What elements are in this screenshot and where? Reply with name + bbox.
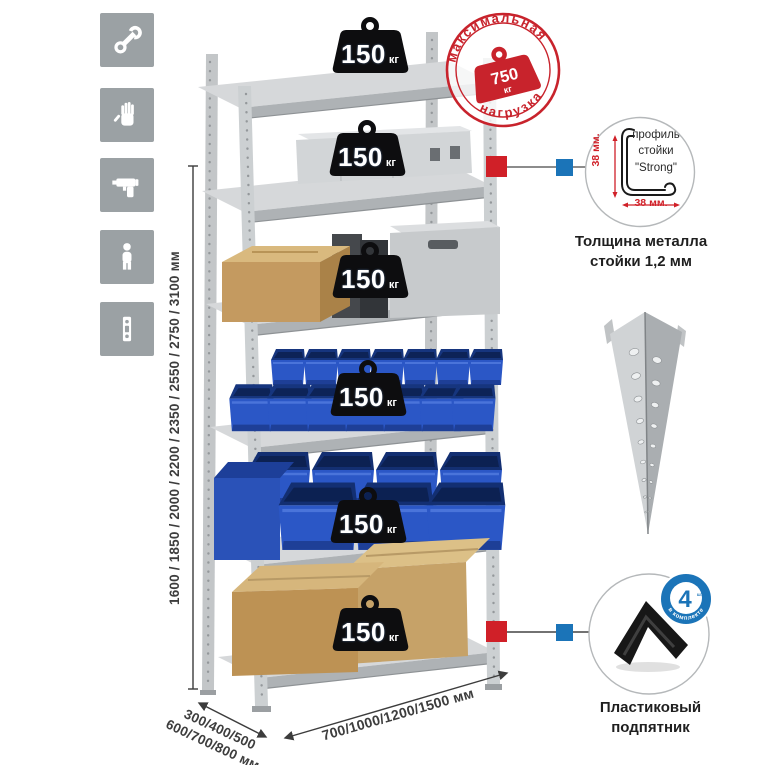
blue-marker-bottom (556, 624, 573, 641)
plastic-foot-caption: Пластиковый подпятник (563, 698, 738, 739)
gloves-icon (105, 93, 149, 137)
shelf4-load-badge: 150кг (322, 358, 414, 422)
feature-tile-tools (100, 13, 154, 67)
perforated-post-icon (105, 307, 149, 351)
feature-tile-drill (100, 158, 154, 212)
wrench-icon (105, 18, 149, 62)
red-marker-top (486, 156, 507, 177)
badge-count: 4 (678, 586, 692, 613)
included-count-badge: 4 штуки в комплекте (658, 571, 714, 627)
shelf5-load-badge: 150кг (322, 485, 414, 549)
profile-dim-horizontal: 38 мм. (628, 197, 674, 209)
metal-thickness-caption: Толщина металла стойки 1,2 мм (555, 232, 727, 273)
max-load-stamp: максимальная нагрузка 750 кг (441, 8, 565, 132)
profile-dim-vertical: 38 мм. (590, 130, 602, 170)
angle-post-image (604, 312, 686, 534)
height-dimensions-label: 1600 / 1850 / 2000 / 2200 / 2350 / 2550 … (167, 218, 185, 638)
feature-tile-gloves (100, 88, 154, 142)
feature-tile-person (100, 230, 154, 284)
product-infographic: 1600 / 1850 / 2000 / 2200 / 2350 / 2550 … (0, 0, 765, 765)
drill-icon (105, 163, 149, 207)
shelf1-load-badge: 150кг (324, 15, 416, 79)
red-marker-bottom (486, 621, 507, 642)
profile-label: профиль стойки "Strong" (615, 127, 697, 176)
shelf2-load-badge: 150кг (321, 118, 413, 182)
shelf6-load-badge: 150кг (324, 593, 416, 657)
person-icon (105, 235, 149, 279)
shelf3-load-badge: 150кг (324, 240, 416, 304)
blue-marker-top (556, 159, 573, 176)
feature-tile-post (100, 302, 154, 356)
detail-connectors (486, 156, 589, 642)
badge-count-unit: штуки (697, 592, 711, 597)
